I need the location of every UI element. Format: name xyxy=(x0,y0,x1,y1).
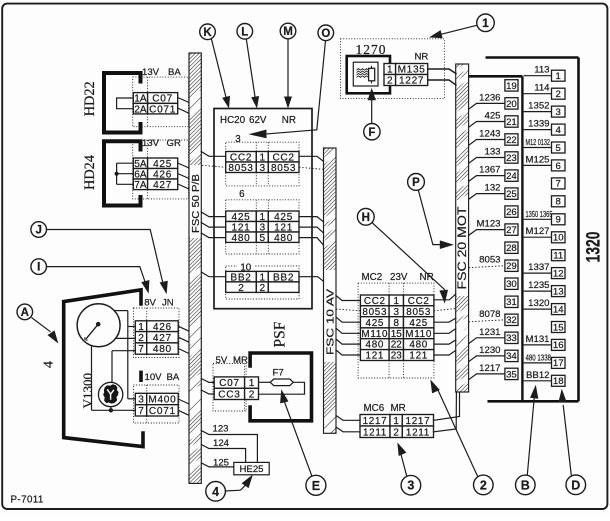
svg-text:M123: M123 xyxy=(477,219,501,230)
svg-text:24: 24 xyxy=(506,171,517,182)
svg-text:NR: NR xyxy=(415,51,429,62)
svg-text:M131: M131 xyxy=(526,334,550,345)
svg-text:8053: 8053 xyxy=(271,163,296,174)
svg-text:2: 2 xyxy=(238,283,244,294)
svg-text:121: 121 xyxy=(409,351,428,362)
svg-text:13V: 13V xyxy=(142,67,160,78)
svg-text:3: 3 xyxy=(556,107,561,118)
svg-text:C071: C071 xyxy=(149,104,176,115)
svg-text:4: 4 xyxy=(42,361,57,368)
svg-text:D: D xyxy=(571,478,580,492)
svg-text:O: O xyxy=(321,28,330,40)
svg-text:1337: 1337 xyxy=(528,262,549,273)
svg-text:25: 25 xyxy=(506,189,517,200)
svg-text:HC20: HC20 xyxy=(220,115,246,126)
svg-text:22: 22 xyxy=(506,135,517,146)
svg-text:7: 7 xyxy=(556,179,561,190)
svg-text:1227: 1227 xyxy=(399,76,424,87)
svg-text:NR: NR xyxy=(282,115,296,126)
svg-text:30: 30 xyxy=(506,279,517,290)
svg-text:2: 2 xyxy=(259,283,265,294)
svg-text:13V: 13V xyxy=(142,138,160,149)
svg-text:1236: 1236 xyxy=(479,92,500,103)
svg-text:26: 26 xyxy=(506,207,517,218)
svg-text:13: 13 xyxy=(553,286,564,297)
svg-text:1235: 1235 xyxy=(528,280,549,291)
svg-text:1: 1 xyxy=(249,378,255,389)
svg-text:1211: 1211 xyxy=(363,427,387,438)
svg-text:23V: 23V xyxy=(390,272,408,283)
svg-text:GR: GR xyxy=(167,138,181,149)
svg-text:114: 114 xyxy=(534,83,550,94)
svg-text:MC2: MC2 xyxy=(362,272,383,283)
svg-text:MR: MR xyxy=(233,355,248,366)
svg-text:29: 29 xyxy=(506,261,517,272)
svg-text:121: 121 xyxy=(366,351,385,362)
svg-text:2: 2 xyxy=(556,89,561,100)
svg-text:1243: 1243 xyxy=(479,129,500,140)
svg-text:1217: 1217 xyxy=(363,416,388,427)
svg-text:4: 4 xyxy=(556,125,562,136)
svg-text:23: 23 xyxy=(391,351,402,362)
svg-text:9: 9 xyxy=(556,215,561,226)
svg-text:7: 7 xyxy=(138,344,144,355)
svg-text:123: 123 xyxy=(213,424,229,435)
svg-text:2A: 2A xyxy=(134,104,147,115)
svg-text:1320: 1320 xyxy=(583,231,605,262)
svg-text:M: M xyxy=(283,26,293,38)
svg-text:33: 33 xyxy=(506,333,517,344)
svg-text:20: 20 xyxy=(506,99,517,110)
svg-text:11: 11 xyxy=(553,251,563,262)
svg-text:17: 17 xyxy=(553,358,564,369)
svg-text:M12 0132: M12 0132 xyxy=(526,137,551,147)
svg-text:4: 4 xyxy=(212,485,219,499)
svg-text:BA: BA xyxy=(168,67,181,78)
svg-text:FSC 10 AV: FSC 10 AV xyxy=(325,289,336,355)
svg-text:V1300: V1300 xyxy=(80,373,95,408)
svg-text:6: 6 xyxy=(239,189,245,200)
svg-text:10: 10 xyxy=(553,233,564,244)
svg-text:133: 133 xyxy=(484,147,500,158)
svg-text:I: I xyxy=(37,262,40,274)
svg-text:5: 5 xyxy=(259,233,265,244)
svg-text:18: 18 xyxy=(553,376,564,387)
svg-text:PSF: PSF xyxy=(272,321,289,347)
svg-text:1270: 1270 xyxy=(356,42,387,57)
svg-text:2: 2 xyxy=(387,76,393,87)
svg-text:15: 15 xyxy=(553,322,564,333)
svg-text:113: 113 xyxy=(534,65,549,76)
svg-text:3: 3 xyxy=(235,134,241,145)
svg-text:480 1338: 480 1338 xyxy=(526,352,552,362)
svg-text:MC6: MC6 xyxy=(364,403,385,414)
svg-text:1320: 1320 xyxy=(528,298,549,309)
svg-text:28: 28 xyxy=(506,243,517,254)
svg-text:L: L xyxy=(241,26,248,38)
svg-text:C071: C071 xyxy=(149,406,176,417)
svg-text:HE25: HE25 xyxy=(240,464,264,475)
svg-text:32: 32 xyxy=(506,315,517,326)
svg-text:1211: 1211 xyxy=(406,427,430,438)
svg-text:14: 14 xyxy=(553,304,564,315)
svg-text:E: E xyxy=(312,479,320,493)
svg-text:7A: 7A xyxy=(134,180,147,191)
svg-text:2: 2 xyxy=(249,390,255,401)
svg-text:27: 27 xyxy=(506,225,517,236)
svg-text:C07: C07 xyxy=(219,378,240,389)
svg-text:1: 1 xyxy=(556,71,561,82)
svg-text:5: 5 xyxy=(556,143,561,154)
svg-text:132: 132 xyxy=(484,183,500,194)
svg-text:3: 3 xyxy=(407,479,414,493)
svg-text:K: K xyxy=(203,27,212,39)
svg-text:480: 480 xyxy=(153,344,172,355)
svg-text:21: 21 xyxy=(506,117,517,128)
svg-text:12: 12 xyxy=(553,268,564,279)
svg-text:6: 6 xyxy=(556,161,561,172)
svg-text:MR: MR xyxy=(391,403,406,414)
svg-text:31: 31 xyxy=(506,297,517,308)
svg-text:19: 19 xyxy=(506,81,517,92)
svg-text:1367: 1367 xyxy=(479,165,500,176)
svg-text:CC3: CC3 xyxy=(218,390,240,401)
svg-text:425: 425 xyxy=(484,111,500,122)
svg-text:FSC 50 P/B: FSC 50 P/B xyxy=(191,174,202,233)
svg-text:3: 3 xyxy=(138,395,144,406)
svg-text:1339: 1339 xyxy=(528,119,549,130)
svg-text:34: 34 xyxy=(506,351,517,362)
svg-text:HD24: HD24 xyxy=(82,155,98,190)
svg-text:8: 8 xyxy=(556,197,561,208)
svg-text:1217: 1217 xyxy=(406,416,431,427)
svg-text:10V: 10V xyxy=(145,372,163,383)
svg-text:1217: 1217 xyxy=(479,363,500,374)
svg-text:P: P xyxy=(412,177,420,189)
svg-text:P-7011: P-7011 xyxy=(11,495,44,506)
svg-text:7: 7 xyxy=(138,406,144,417)
svg-text:BB12: BB12 xyxy=(526,370,549,381)
svg-text:8V: 8V xyxy=(144,298,156,309)
svg-text:JN: JN xyxy=(162,298,174,309)
svg-text:M127: M127 xyxy=(526,226,550,237)
svg-text:BA: BA xyxy=(167,372,180,383)
svg-text:1231: 1231 xyxy=(479,327,500,338)
svg-text:23: 23 xyxy=(506,153,517,164)
svg-text:480: 480 xyxy=(274,233,293,244)
svg-text:HD22: HD22 xyxy=(82,81,98,116)
svg-text:J: J xyxy=(35,225,41,237)
svg-text:2: 2 xyxy=(393,427,399,438)
svg-text:1: 1 xyxy=(393,416,399,427)
svg-text:1350 1365: 1350 1365 xyxy=(526,209,553,219)
svg-text:M125: M125 xyxy=(526,154,550,165)
svg-text:5V: 5V xyxy=(216,355,228,366)
svg-text:480: 480 xyxy=(232,233,251,244)
svg-text:427: 427 xyxy=(153,180,172,191)
svg-text:3: 3 xyxy=(259,163,265,174)
svg-text:H: H xyxy=(362,212,370,224)
svg-text:16: 16 xyxy=(553,340,564,351)
svg-text:B: B xyxy=(521,478,530,492)
svg-text:8078: 8078 xyxy=(479,309,500,320)
svg-text:62V: 62V xyxy=(249,115,267,126)
svg-text:F: F xyxy=(368,127,375,139)
svg-text:A: A xyxy=(21,307,29,319)
svg-text:F7: F7 xyxy=(273,367,284,378)
svg-text:1352: 1352 xyxy=(528,101,549,112)
svg-text:8053: 8053 xyxy=(479,255,500,266)
svg-text:M400: M400 xyxy=(148,395,176,406)
svg-text:124: 124 xyxy=(213,438,230,449)
svg-text:35: 35 xyxy=(506,369,517,380)
svg-text:FSC 20 MOT: FSC 20 MOT xyxy=(455,206,469,290)
svg-text:8053: 8053 xyxy=(228,163,253,174)
svg-text:1230: 1230 xyxy=(479,345,500,356)
svg-text:2: 2 xyxy=(480,478,487,492)
svg-text:1: 1 xyxy=(482,16,489,30)
